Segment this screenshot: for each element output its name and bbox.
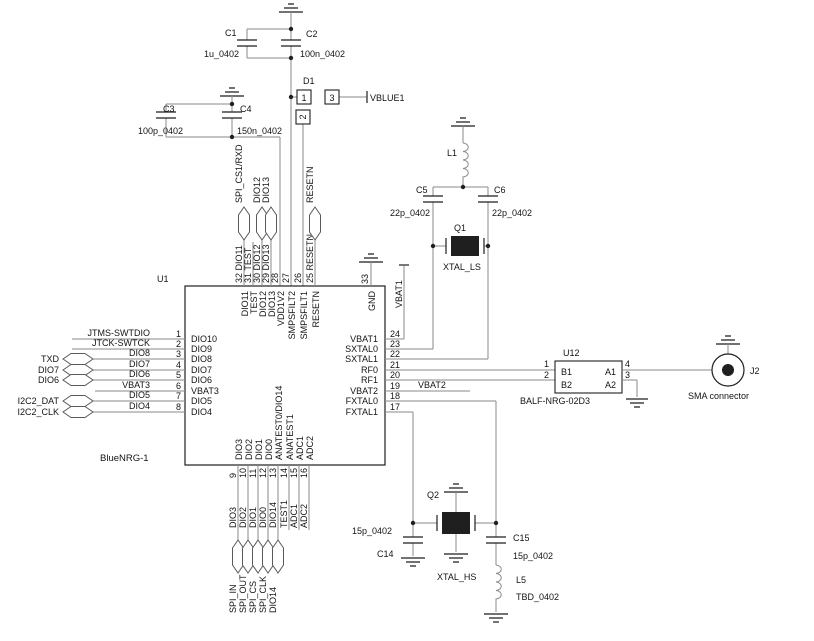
port-diamond (243, 540, 254, 573)
u1-pin-stub-label-top: 27 (281, 273, 291, 283)
u1-pin-name-bottom: ANATEST0/DIO14 (274, 386, 284, 460)
port-label-bottom: DIO14 (268, 587, 278, 613)
port-diamond (63, 407, 93, 418)
u1-left-wire-label: VBAT3 (122, 380, 150, 390)
d1-pin3: 3 (329, 93, 334, 103)
u1-pin-name-bottom: DIO3 (234, 439, 244, 460)
port-label-bottom: SPI_IN (228, 584, 238, 613)
inductor-icon (463, 143, 468, 187)
u1-pin-num-left: 2 (176, 339, 181, 349)
u1-pin-name-left: DIO6 (191, 375, 212, 385)
junction-dot (230, 135, 234, 139)
ground-icon (451, 118, 475, 126)
u1-bottom-wire-label: ADC1 (289, 504, 299, 528)
ground-icon (279, 4, 303, 12)
c3-ref: C3 (163, 104, 175, 114)
u1-pin-name-top: RESETN (311, 291, 321, 328)
u1-pin-name-right: VBAT1 (350, 334, 378, 344)
u1-pin-name-right: SXTAL0 (345, 344, 378, 354)
u1-pin-name-top: SMPSFILT2 (287, 291, 297, 339)
u1-pin-fields: 1JTMS-SWTDIODIO102JTCK-SWTCKDIO93DIO8DIO… (17, 144, 400, 613)
balun-u12: U12 BALF-NRG-02D3 1 2 4 3 B1 B2 A1 A2 (520, 348, 712, 407)
u1-pin-name-left: DIO10 (191, 334, 217, 344)
u1-pin-name-bottom: ADC2 (305, 436, 315, 460)
xtal-hs-circuit: Q2 XTAL_HS 15p_0402 C14 C15 15p_0402 L5 … (352, 484, 559, 622)
u1-pin-name-left: DIO7 (191, 365, 212, 375)
c6-ref: C6 (494, 185, 506, 195)
xtal-ls-circuit: L1 C5 22p_0402 C6 22p_0402 Q1 XTAL_LS (390, 118, 532, 359)
u1-pin33-name: GND (367, 291, 377, 312)
c14-value: 15p_0402 (352, 526, 392, 536)
u1-pin-num-bottom: 13 (268, 468, 278, 478)
port-diamond (310, 207, 321, 240)
port-label-top: DIO13 (261, 177, 271, 203)
capacitor-icon (237, 40, 301, 46)
u1-left-wire-label: DIO8 (129, 348, 150, 358)
u1-pin-name-left: DIO5 (191, 396, 212, 406)
c15-ref: C15 (513, 533, 530, 543)
u1-left-wire-label: DIO5 (129, 390, 150, 400)
u1-pin-num-right: 23 (390, 339, 400, 349)
u1-pin-name-right: RF0 (361, 365, 378, 375)
u1-pin-name-bottom: ANATEST1 (285, 414, 295, 460)
port-label-left: DIO6 (38, 375, 59, 385)
u1-bottom-wire-label: DIO3 (228, 507, 238, 528)
port-label-bottom: SPI_CLK (258, 576, 268, 613)
u1-pin-name-left: DIO4 (191, 407, 212, 417)
u12-part-name: BALF-NRG-02D3 (520, 396, 590, 406)
u1-pin-num-bottom: 16 (299, 468, 309, 478)
u1-pin-num-left: 6 (176, 381, 181, 391)
capacitor-icon (403, 537, 506, 543)
u1-pin-stub-label-top: 28 (270, 273, 280, 283)
l5-value: TBD_0402 (516, 592, 559, 602)
sma-connector-j2: J2 SMA connector (688, 336, 760, 401)
u1-pin-name-right: RF1 (361, 375, 378, 385)
u1-pin-name-bottom: DIO2 (244, 439, 254, 460)
u1-pin-num-bottom: 12 (258, 468, 268, 478)
port-label-top: SPI_CS1/RXD (234, 144, 244, 203)
j2-label: SMA connector (688, 391, 749, 401)
u12-a2: A2 (605, 380, 616, 390)
u1-bottom-wire-label: ADC2 (299, 504, 309, 528)
junction-dot (494, 521, 498, 525)
l5-ref: L5 (516, 575, 526, 585)
d1-pin1: 1 (301, 93, 306, 103)
port-diamond (63, 375, 93, 386)
u1-left-wire-label: DIO6 (129, 369, 150, 379)
ground-icon (444, 554, 468, 562)
junction-dot (411, 521, 415, 525)
right-side-wires: VBAT1 VBAT2 (385, 265, 555, 523)
q2-label: XTAL_HS (437, 572, 476, 582)
c5-value: 22p_0402 (390, 208, 430, 218)
schematic-drawing: C1 1u_0402 C2 100n_0402 D1 1 3 2 VBLUE1 … (0, 0, 814, 641)
ground-icon (401, 558, 425, 566)
ground-icon (359, 254, 383, 262)
u1-pin33-num: 33 (360, 274, 370, 284)
c3-value: 100p_0402 (138, 126, 183, 136)
u1-left-wire-label: JTCK-SWTCK (92, 338, 150, 348)
u1-pin-num-left: 3 (176, 349, 181, 359)
j2-ref: J2 (750, 366, 760, 376)
u12-a1: A1 (605, 367, 616, 377)
u12-b1: B1 (561, 367, 572, 377)
u1-pin-num-right: 22 (390, 349, 400, 359)
u1-pin-num-left: 7 (176, 391, 181, 401)
u1-pin-num-bottom: 15 (289, 468, 299, 478)
port-diamond (239, 207, 250, 240)
wire (433, 187, 488, 359)
junction-dot (289, 27, 293, 31)
c4-value: 150n_0402 (237, 126, 282, 136)
port-label-left: I2C2_CLK (17, 407, 59, 417)
u1-pin-name-right: VBAT2 (350, 386, 378, 396)
u1-part-name: BlueNRG-1 (100, 453, 149, 464)
c2-value: 100n_0402 (300, 49, 345, 59)
c2-ref: C2 (306, 29, 318, 39)
q1-ref: Q1 (454, 223, 466, 233)
c4-ref: C4 (240, 104, 252, 114)
u1-bottom-wire-label: TEST1 (279, 500, 289, 528)
u1-left-wire-label: DIO7 (129, 359, 150, 369)
port-diamond (63, 396, 93, 407)
u1-pin-num-right: 19 (390, 381, 400, 391)
u1-pin-num-right: 24 (390, 329, 400, 339)
c1-ref: C1 (225, 28, 237, 38)
c5-ref: C5 (416, 185, 428, 195)
c6-value: 22p_0402 (492, 208, 532, 218)
wire (247, 12, 291, 97)
port-label-bottom: SPI_CS (248, 581, 258, 613)
d1-ref: D1 (303, 76, 315, 86)
port-label-bottom: SPI_OUT (238, 574, 248, 613)
sma-center-pin (722, 364, 734, 376)
u1-pin-name-right: FXTAL1 (346, 407, 378, 417)
port-label-left: TXD (41, 354, 60, 364)
port-label-left: I2C2_DAT (18, 396, 60, 406)
port-diamond (273, 540, 284, 573)
u12-pin3-num: 3 (625, 370, 630, 380)
u1-pin-stub-label-top: 26 (293, 273, 303, 283)
port-diamond (266, 207, 277, 240)
u1-pin-num-left: 8 (176, 402, 181, 412)
u1-pin-name-bottom: DIO1 (254, 439, 264, 460)
u1-pin-num-right: 17 (390, 402, 400, 412)
u12-ref: U12 (563, 348, 580, 358)
junction-dot (289, 56, 293, 60)
u1-pin-num-bottom: 11 (248, 469, 258, 478)
u1-ref: U1 (157, 274, 169, 284)
u1-pin-num-bottom: 9 (228, 473, 238, 478)
u1-pin-name-top: VDD1V2 (276, 291, 286, 326)
u1-pin-name-left: DIO9 (191, 344, 212, 354)
u12-pin2-num: 2 (544, 370, 549, 380)
ground-icon (444, 484, 468, 492)
ground-icon (716, 336, 740, 344)
wire (385, 266, 555, 523)
net-vbat1: VBAT1 (394, 280, 404, 308)
port-diamond (263, 540, 274, 573)
junction-dot (461, 185, 465, 189)
u1-left-wire-label: DIO4 (129, 401, 150, 411)
crystal-body (442, 512, 470, 534)
port-diamond (233, 540, 244, 573)
u1-pin-num-right: 20 (390, 370, 400, 380)
u1-pin-num-left: 5 (176, 370, 181, 380)
junction-dot (486, 244, 490, 248)
port-label-left: DIO7 (38, 365, 59, 375)
u1-bottom-wire-label: DIO2 (238, 507, 248, 528)
c15-value: 15p_0402 (513, 551, 553, 561)
port-diamond (253, 540, 264, 573)
u1-pin-name-bottom: ADC1 (295, 436, 305, 460)
ground-icon (484, 614, 508, 622)
filter-c1-c2: C1 1u_0402 C2 100n_0402 (204, 4, 345, 97)
ground-icon (220, 88, 244, 96)
net-vblue1: VBLUE1 (370, 93, 405, 103)
port-diamond (63, 365, 93, 376)
u1-pin-num-right: 18 (390, 391, 400, 401)
net-vbat2: VBAT2 (418, 380, 446, 390)
u1-pin-name-left: VBAT3 (191, 386, 219, 396)
inductor-icon (496, 565, 501, 612)
u12-pin4-num: 4 (625, 359, 630, 369)
u1-pin-num-right: 21 (390, 360, 400, 370)
c1-value: 1u_0402 (204, 49, 239, 59)
u1-pin-num-left: 4 (176, 360, 181, 370)
c14-ref: C14 (377, 549, 394, 559)
u1-bottom-wire-label: DIO1 (248, 507, 258, 528)
u1-pin-num-bottom: 14 (279, 468, 289, 478)
u1-pin-name-right: SXTAL1 (345, 354, 378, 364)
u1-pin-stub-label-top: 25 RESETN (305, 234, 315, 283)
q2-ref: Q2 (427, 490, 439, 500)
u1-pin-name-right: FXTAL0 (346, 396, 378, 406)
port-diamond (63, 354, 93, 365)
u1-pin-num-bottom: 10 (238, 468, 248, 478)
ground-icon (626, 399, 648, 407)
u1-left-wire-label: JTMS-SWTDIO (88, 328, 151, 338)
port-label-top: RESETN (305, 166, 315, 203)
u1-pin-name-top: SMPSFILT1 (299, 291, 309, 339)
junction-dot (289, 95, 293, 99)
schematic-page: C1 1u_0402 C2 100n_0402 D1 1 3 2 VBLUE1 … (0, 0, 814, 641)
u1-pin-name-bottom: DIO0 (264, 439, 274, 460)
d1-pin2: 2 (298, 114, 308, 119)
u12-b2: B2 (561, 380, 572, 390)
crystal-body (451, 236, 479, 256)
u1-bottom-wire-label: DIO14 (268, 502, 278, 528)
u1-bottom-wire-label: DIO0 (258, 507, 268, 528)
junction-dot (230, 102, 234, 106)
u12-pin1-num: 1 (544, 359, 549, 369)
q1-label: XTAL_LS (443, 262, 481, 272)
u1-pin-num-left: 1 (176, 329, 181, 339)
wire (291, 97, 367, 286)
u1-pin-name-left: DIO8 (191, 354, 212, 364)
junction-dot (431, 244, 435, 248)
l1-ref: L1 (447, 148, 457, 158)
capacitor-icon (423, 196, 498, 202)
